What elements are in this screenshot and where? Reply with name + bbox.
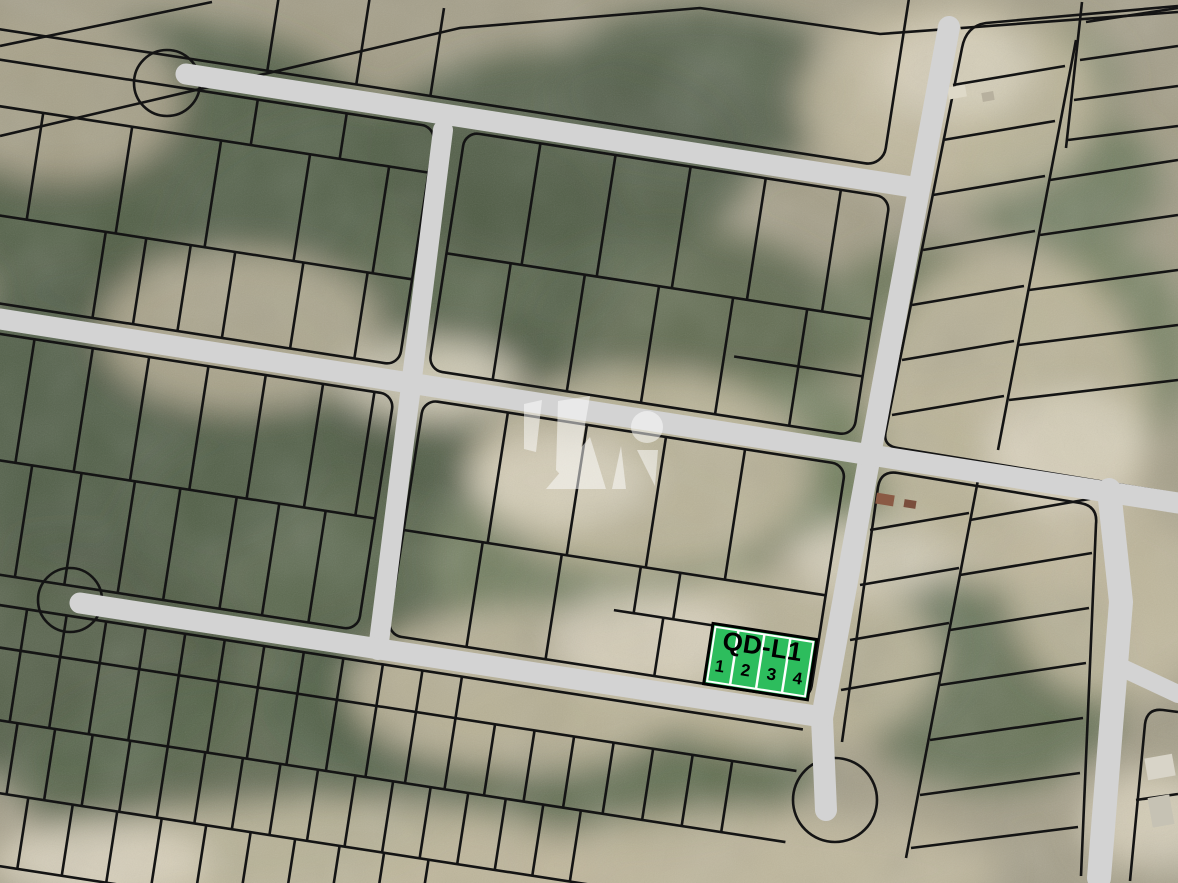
map-viewport[interactable]: 1234QD-L1: [0, 0, 1178, 883]
watermark-circle: [631, 411, 663, 443]
site-plan-map: 1234QD-L1: [0, 0, 1178, 883]
